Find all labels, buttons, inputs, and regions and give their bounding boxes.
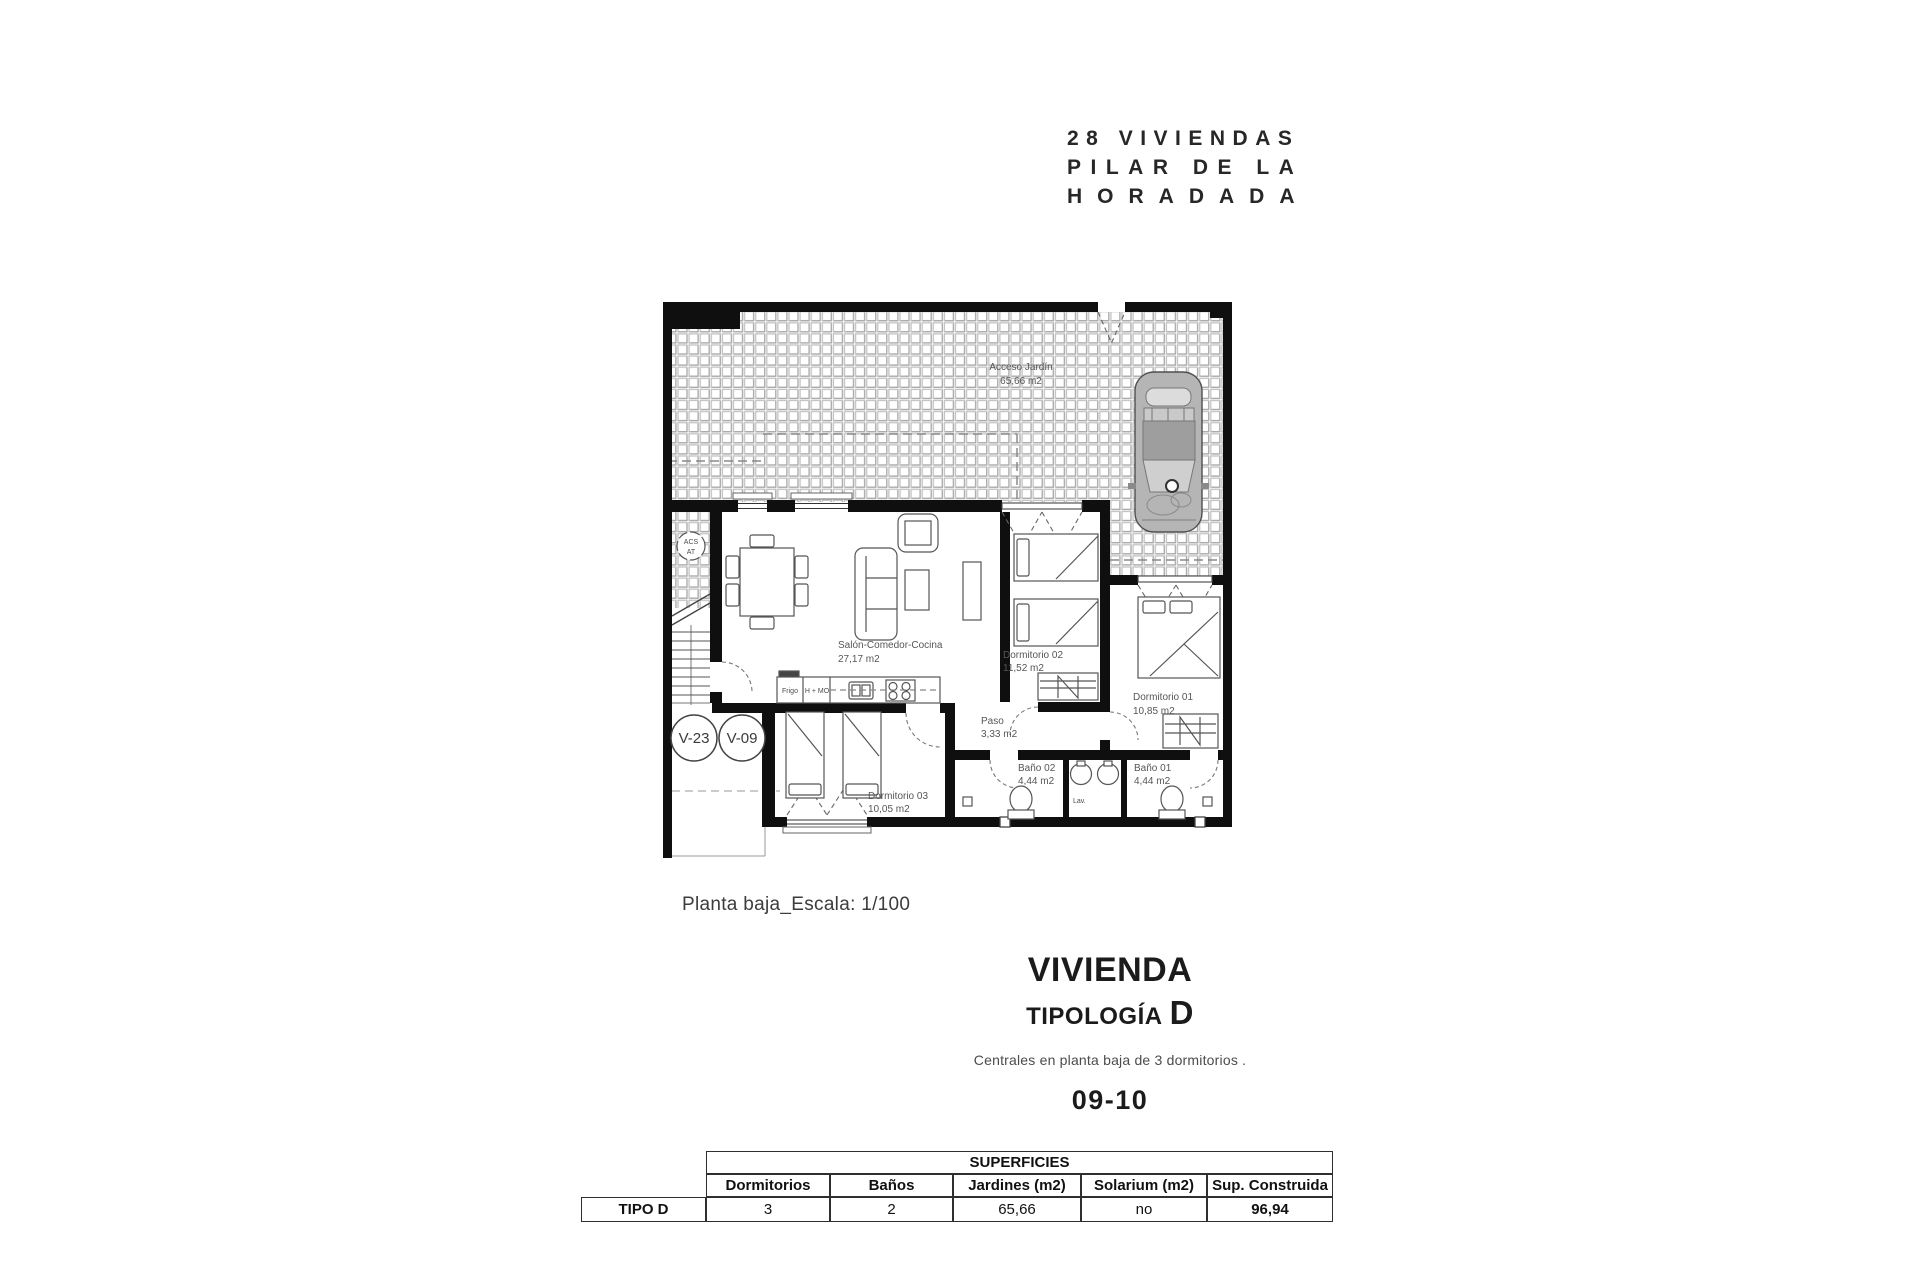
svg-text:AT: AT [687, 549, 696, 556]
heading-subtitle-label: TIPOLOGÍA [1026, 1003, 1163, 1030]
bed-icon [786, 712, 881, 798]
project-title-line2: PILAR DE LA [1067, 153, 1310, 182]
table-col-dormitorios: Dormitorios [706, 1174, 830, 1197]
room-area-bano02: 4,44 m2 [1018, 776, 1055, 787]
unit-badge-v09: V-09 [719, 715, 765, 761]
room-area-dorm02: 11,52 m2 [1003, 663, 1044, 674]
room-label-dorm01: Dormitorio 01 [1133, 692, 1193, 703]
room-label-dorm03: Dormitorio 03 [868, 791, 928, 802]
label-lav: Lav. [1073, 798, 1086, 805]
svg-text:V-09: V-09 [727, 730, 758, 747]
table-col-banos: Baños [830, 1174, 953, 1197]
stairs-icon [672, 594, 710, 705]
shower-drain-icon [1203, 797, 1212, 806]
room-label-paso: Paso [981, 716, 1004, 727]
heading-subtitle: TIPOLOGÍAD [920, 994, 1300, 1032]
wardrobe-icon [1038, 673, 1098, 700]
toilet-icon [1159, 786, 1185, 819]
room-label-bano01: Baño 01 [1134, 763, 1172, 774]
heading-description: Centrales en planta baja de 3 dormitorio… [920, 1052, 1300, 1068]
table-row-label: TIPO D [581, 1197, 706, 1222]
room-label-dorm02: Dormitorio 02 [1003, 650, 1063, 661]
table-spacer [581, 1174, 706, 1197]
room-area-paso: 3,33 m2 [981, 729, 1018, 740]
table-value-sup-construida: 96,94 [1207, 1197, 1333, 1222]
room-label-salon: Salón-Comedor-Cocina [838, 640, 943, 651]
project-title-line3: HORADADA [1067, 182, 1310, 211]
armchair-icon [898, 514, 938, 552]
surfaces-table: SUPERFICIES Dormitorios Baños Jardines (… [581, 1151, 1333, 1222]
table-group-header: SUPERFICIES [706, 1151, 1333, 1174]
tv-unit-icon [963, 562, 981, 620]
shower-drain-icon [963, 797, 972, 806]
page: { "project_title": { "line1": "28 VIVIEN… [0, 0, 1920, 1280]
garden-label: Acceso Jardín [989, 362, 1052, 373]
wardrobe-icon [1163, 714, 1218, 748]
label-frigo: Frigo [782, 688, 798, 695]
table-value-banos: 2 [830, 1197, 953, 1222]
svg-text:ACS: ACS [684, 539, 699, 546]
room-area-dorm01: 10,85 m2 [1133, 706, 1175, 717]
table-col-sup-construida: Sup. Construida [1207, 1174, 1333, 1197]
unit-badge-v23: V-23 [671, 715, 717, 761]
kitchen-counter-icon [777, 671, 940, 703]
table-value-dormitorios: 3 [706, 1197, 830, 1222]
heading-block: VIVIENDA TIPOLOGÍAD Centrales en planta … [920, 951, 1300, 1116]
acs-badge: ACS AT [677, 532, 705, 560]
sofa-icon [855, 548, 897, 640]
dining-table-icon [726, 535, 808, 629]
table-value-solarium: no [1081, 1197, 1207, 1222]
garden-area: 65,66 m2 [1000, 376, 1042, 387]
scale-caption: Planta baja_Escala: 1/100 [682, 894, 910, 916]
coffee-table-icon [905, 570, 929, 610]
heading-typology-letter: D [1170, 994, 1194, 1031]
table-col-jardines: Jardines (m2) [953, 1174, 1081, 1197]
room-label-bano02: Baño 02 [1018, 763, 1056, 774]
heading-units-range: 09-10 [920, 1085, 1300, 1116]
table-value-jardines: 65,66 [953, 1197, 1081, 1222]
bed-icon [1014, 534, 1098, 646]
room-area-bano01: 4,44 m2 [1134, 776, 1171, 787]
label-h-mo: H + MO [805, 688, 830, 695]
room-area-dorm03: 10,05 m2 [868, 804, 910, 815]
sink-icon [1071, 761, 1119, 785]
double-bed-icon [1138, 597, 1220, 678]
svg-text:V-23: V-23 [679, 730, 710, 747]
room-area-salon: 27,17 m2 [838, 654, 880, 665]
heading-title: VIVIENDA [920, 951, 1300, 990]
table-spacer [581, 1151, 706, 1174]
project-title: 28 VIVIENDAS PILAR DE LA HORADADA [1067, 124, 1310, 211]
car-icon [1128, 372, 1209, 532]
floor-plan: ACS AT V-23 V-09 Acceso Jardín 65,66 m2 … [648, 290, 1248, 870]
toilet-icon [1008, 786, 1034, 819]
project-title-line1: 28 VIVIENDAS [1067, 124, 1310, 153]
table-col-solarium: Solarium (m2) [1081, 1174, 1207, 1197]
